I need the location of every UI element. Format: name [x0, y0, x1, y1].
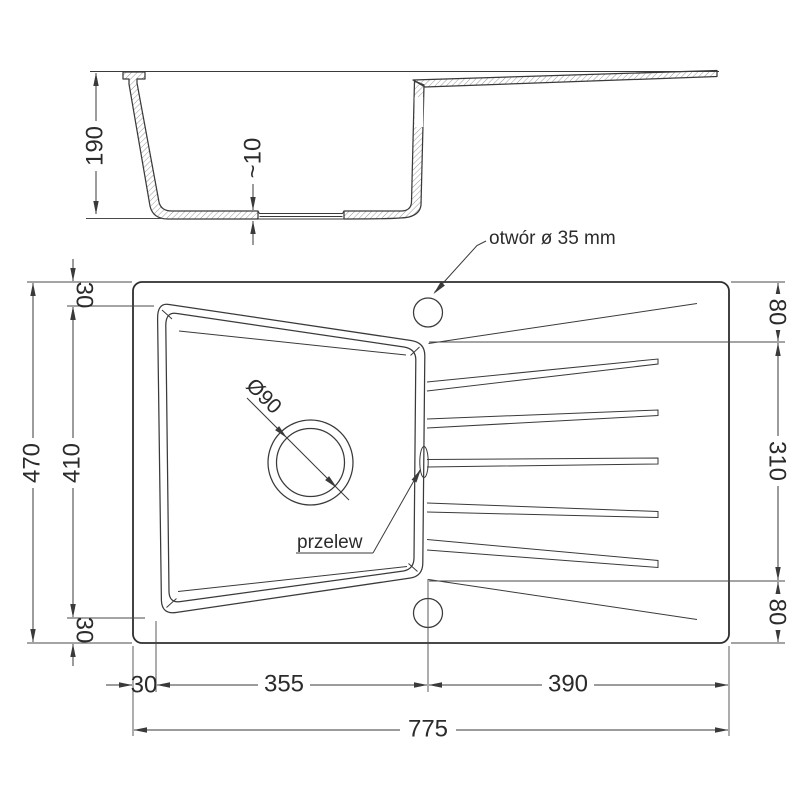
bowl-inner-rim [166, 313, 416, 602]
dim-80-top-label: 80 [764, 299, 791, 326]
overflow-label: przelew [297, 532, 363, 553]
faucet-hole-label: otwór ø 35 mm [489, 228, 616, 249]
faucet-hole-circle [414, 298, 443, 327]
dim-775: 775 [134, 716, 728, 743]
sink-technical-drawing: 190 ~10 [0, 0, 800, 800]
bowl-corner-chamfers [162, 310, 420, 608]
dim-30-top: 30 [71, 259, 98, 329]
dim-390: 390 [429, 671, 728, 698]
dim-30-bottom-label: 30 [71, 617, 98, 644]
dim-30-bottom: 30 [71, 595, 98, 666]
section-right-wall [344, 81, 424, 219]
drainer-edge-bottom [429, 580, 698, 620]
dim-410: 410 [59, 307, 86, 617]
section-view: 190 ~10 [82, 71, 720, 246]
dim-80-bottom-label: 80 [764, 599, 791, 626]
dim-410-label: 410 [59, 443, 86, 483]
technical-drawing-page: 190 ~10 [0, 0, 800, 800]
drainer-grooves [427, 359, 658, 568]
dim-80-top: 80 [764, 283, 791, 341]
dim-390-label: 390 [548, 671, 588, 698]
dim-470: 470 [19, 283, 46, 642]
dim-10: ~10 [240, 138, 267, 245]
section-left-wall [123, 72, 258, 219]
dim-310: 310 [764, 343, 791, 580]
faucet-hole-annotation: otwór ø 35 mm [431, 228, 615, 296]
overflow-annotation: przelew [296, 468, 423, 553]
plan-dimensions: 470 410 30 30 [19, 259, 791, 743]
dim-775-label: 775 [408, 716, 448, 743]
extension-lines [27, 282, 785, 736]
section-overflow-gap [415, 97, 424, 127]
drain-diameter-label: Ø90 [241, 374, 285, 418]
section-recess-lines [258, 211, 344, 219]
dim-355-label: 355 [264, 671, 304, 698]
dim-30-bottomleft-label: 30 [131, 672, 158, 699]
dim-30-top-label: 30 [71, 282, 98, 309]
dim-30-bottomleft: 30 [106, 672, 157, 699]
bowl-wall-edge-bottom [178, 567, 407, 592]
drain-hole-circle [277, 429, 345, 497]
dim-190-label: 190 [82, 126, 109, 166]
drainer-edge-top [429, 304, 698, 344]
dim-310-label: 310 [764, 441, 791, 481]
dim-470-label: 470 [19, 443, 46, 483]
dim-80-bottom: 80 [764, 582, 791, 642]
section-drainer-slab [413, 71, 717, 88]
dim-10-label: ~10 [240, 138, 267, 179]
dim-355: 355 [157, 671, 427, 698]
plan-outline [133, 282, 729, 643]
bowl-outer-rim [158, 304, 425, 612]
